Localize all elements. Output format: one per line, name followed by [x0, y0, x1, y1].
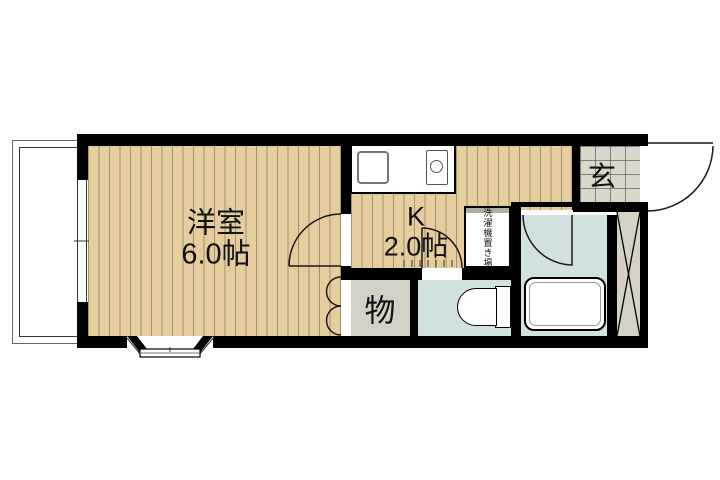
- wall-below-entrance: [573, 202, 648, 212]
- balcony-railing: [19, 147, 78, 337]
- bay-window: [126, 336, 214, 357]
- stove-burner-icon: [430, 160, 443, 173]
- western-room-size: 6.0帖: [181, 240, 250, 271]
- kitchen-label: K 2.0帖: [384, 202, 449, 261]
- toilet-bowl-icon: [457, 288, 497, 326]
- floor-plan: 洋室 6.0帖 K 2.0帖 玄 物 洗濯機置き場: [0, 0, 720, 480]
- bathtub-inner-rim: [529, 282, 601, 326]
- toilet-tank-icon: [495, 286, 511, 328]
- wall-bath-duct: [607, 215, 617, 336]
- sink-icon: [357, 151, 389, 184]
- wall-right: [640, 212, 648, 348]
- washing-machine-label: 洗濯機置き場: [482, 208, 495, 268]
- wall-bottom-right: [213, 336, 648, 348]
- wall-above-storage: [341, 268, 422, 280]
- wall-kitchen-bath: [511, 202, 521, 336]
- duct-space: [617, 212, 640, 336]
- wall-bottom-left: [77, 336, 127, 348]
- western-room-label: 洋室 6.0帖: [181, 209, 250, 272]
- wall-above-bath-door: [521, 202, 573, 207]
- western-room-name: 洋室: [181, 209, 250, 240]
- wall-left-upper: [77, 134, 88, 180]
- entry-door-arc: [648, 143, 713, 211]
- kitchen-name: K: [384, 202, 449, 232]
- wall-entrance-left: [572, 146, 580, 210]
- storage-label: 物: [365, 286, 396, 331]
- wall-top: [77, 134, 648, 146]
- wall-storage-toilet: [410, 280, 418, 336]
- kitchen-size: 2.0帖: [384, 232, 449, 262]
- left-window: [77, 180, 87, 302]
- entrance-label: 玄: [588, 155, 616, 195]
- wall-room-divider-upper: [341, 146, 351, 214]
